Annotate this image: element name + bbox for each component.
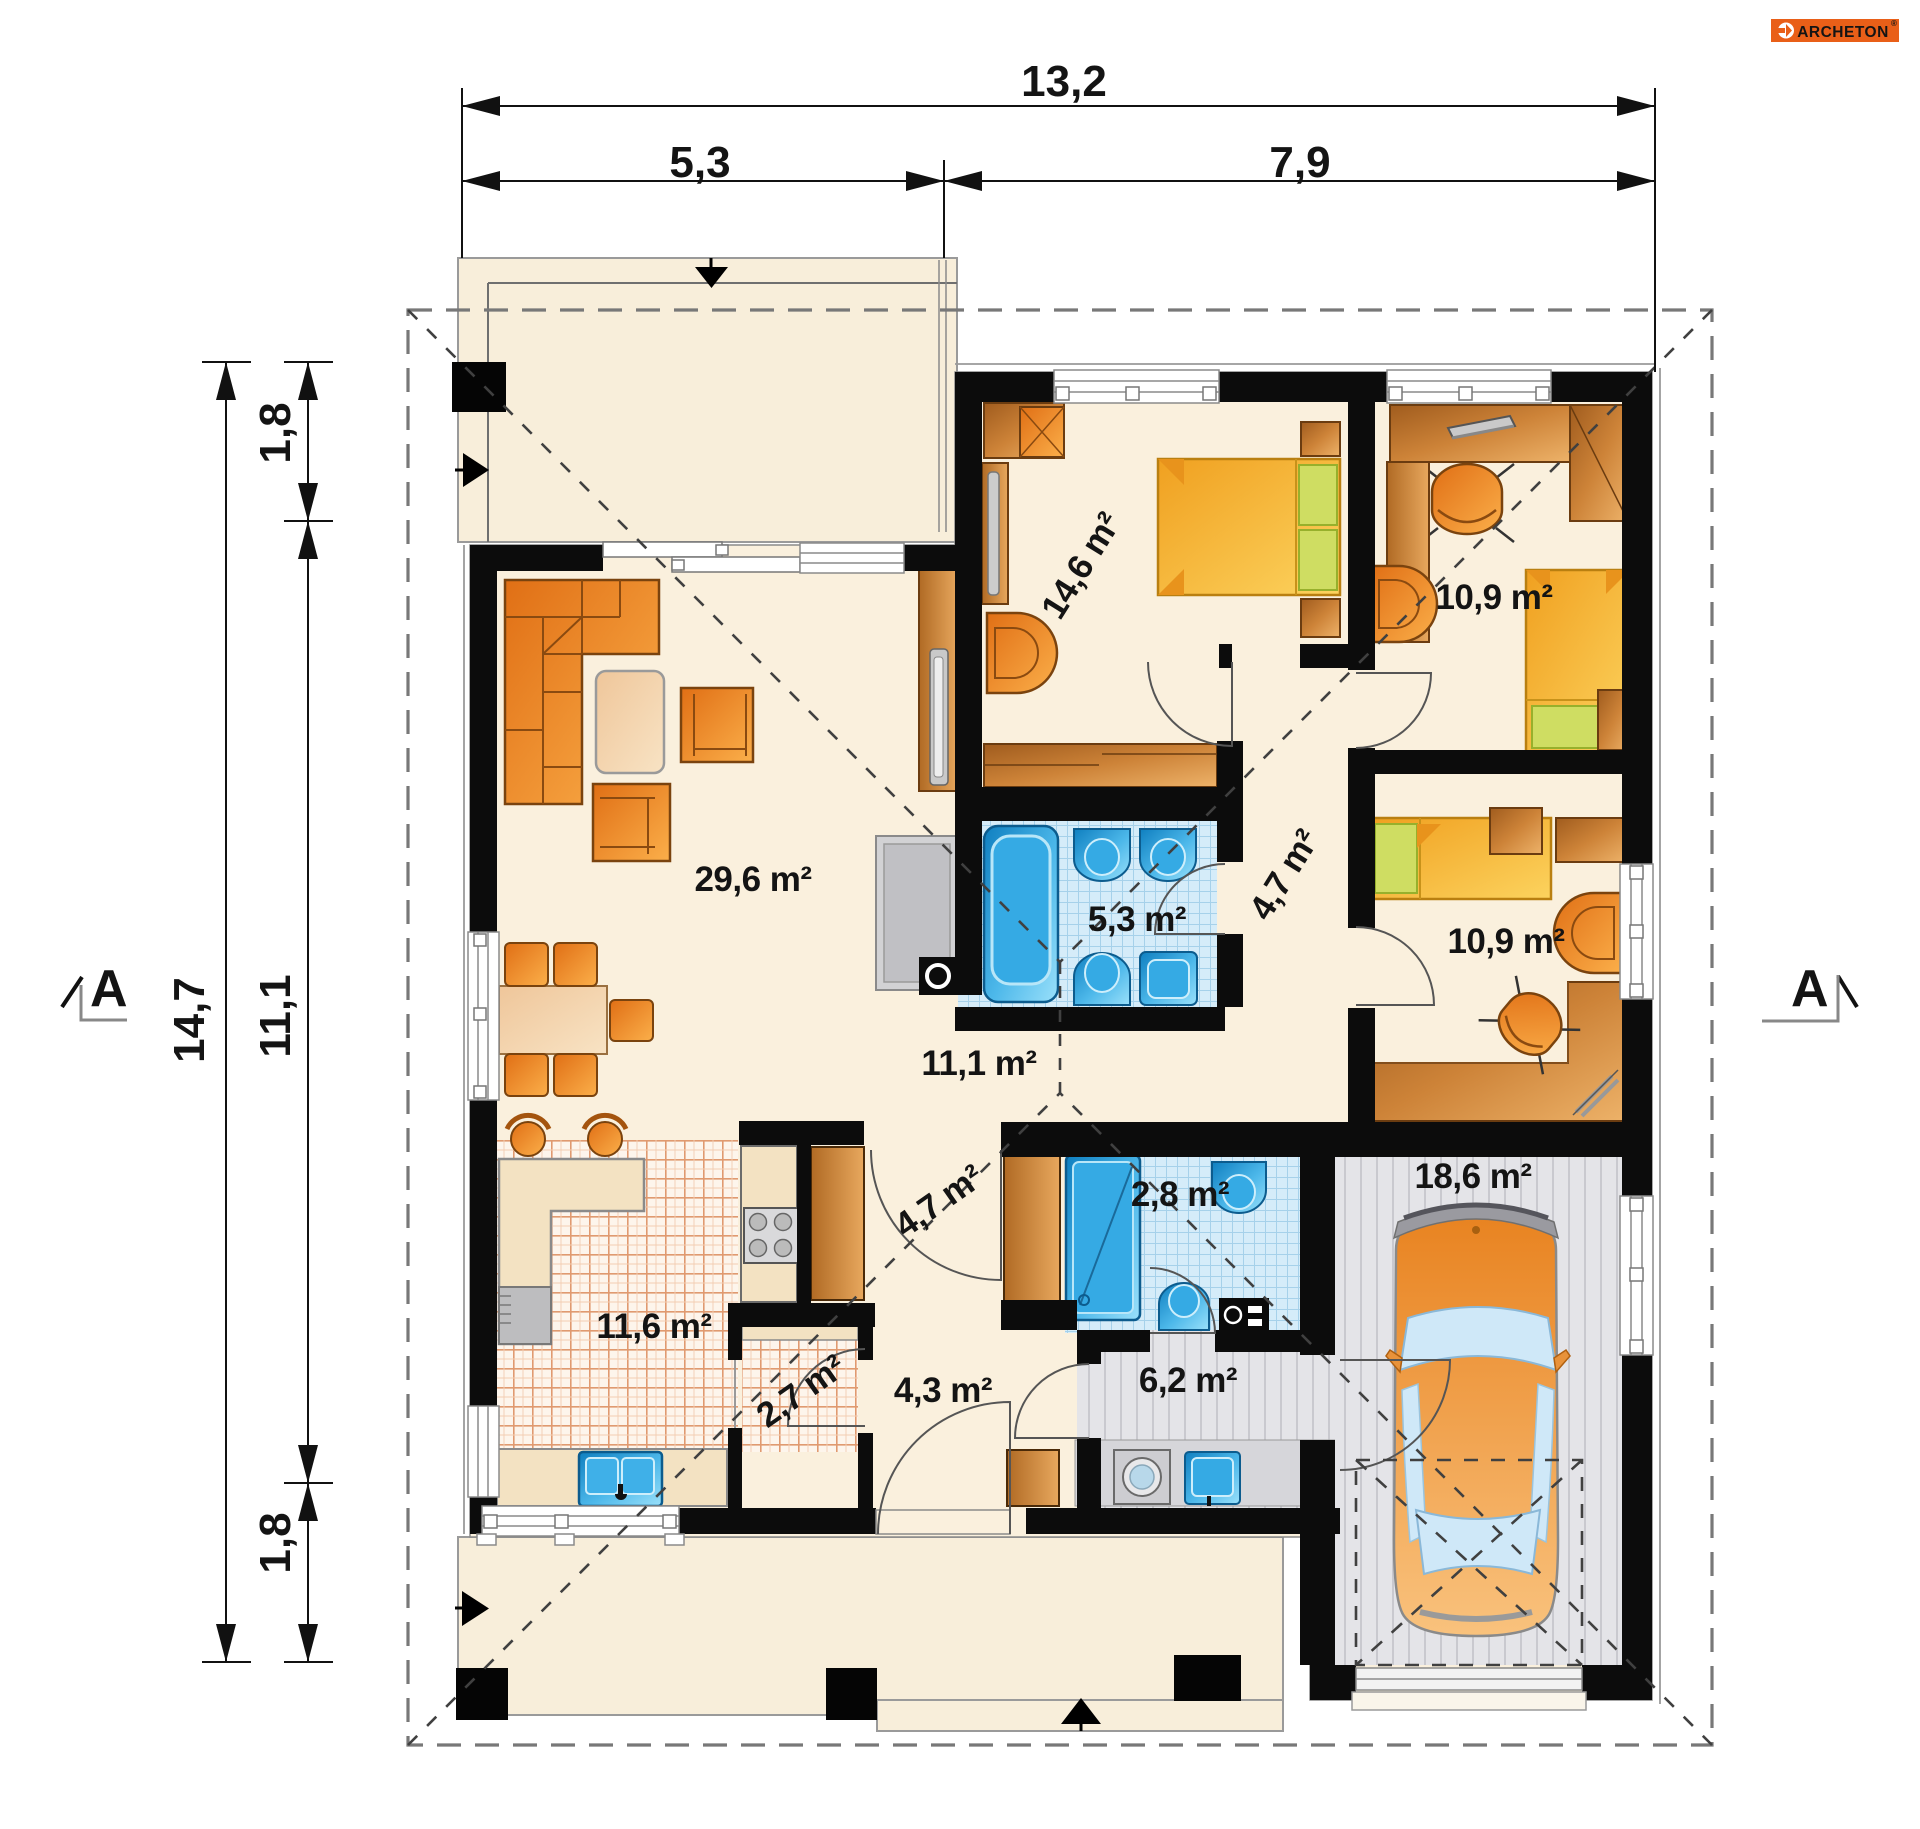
- svg-text:6,2 m²: 6,2 m²: [1139, 1361, 1237, 1400]
- svg-text:5,3 m²: 5,3 m²: [1088, 900, 1186, 939]
- svg-text:®: ®: [1891, 19, 1897, 28]
- svg-text:5,3: 5,3: [669, 138, 730, 187]
- svg-text:4,3 m²: 4,3 m²: [894, 1371, 992, 1410]
- svg-text:29,6 m²: 29,6 m²: [694, 860, 811, 899]
- svg-text:14,7: 14,7: [165, 977, 214, 1063]
- svg-text:18,6 m²: 18,6 m²: [1414, 1157, 1531, 1196]
- svg-text:11,1 m²: 11,1 m²: [921, 1044, 1036, 1083]
- svg-text:2,8 m²: 2,8 m²: [1131, 1175, 1229, 1214]
- svg-text:ARCHETON: ARCHETON: [1797, 24, 1889, 41]
- svg-text:10,9 m²: 10,9 m²: [1447, 922, 1564, 961]
- svg-text:1,8: 1,8: [251, 1512, 300, 1573]
- svg-text:13,2: 13,2: [1021, 57, 1107, 106]
- svg-text:A: A: [1791, 960, 1829, 1018]
- svg-text:10,9 m²: 10,9 m²: [1435, 578, 1552, 617]
- svg-text:A: A: [90, 960, 128, 1018]
- svg-text:11,1: 11,1: [251, 974, 300, 1057]
- svg-text:7,9: 7,9: [1269, 138, 1330, 187]
- svg-text:11,6 m²: 11,6 m²: [596, 1307, 711, 1346]
- svg-text:1,8: 1,8: [251, 402, 300, 463]
